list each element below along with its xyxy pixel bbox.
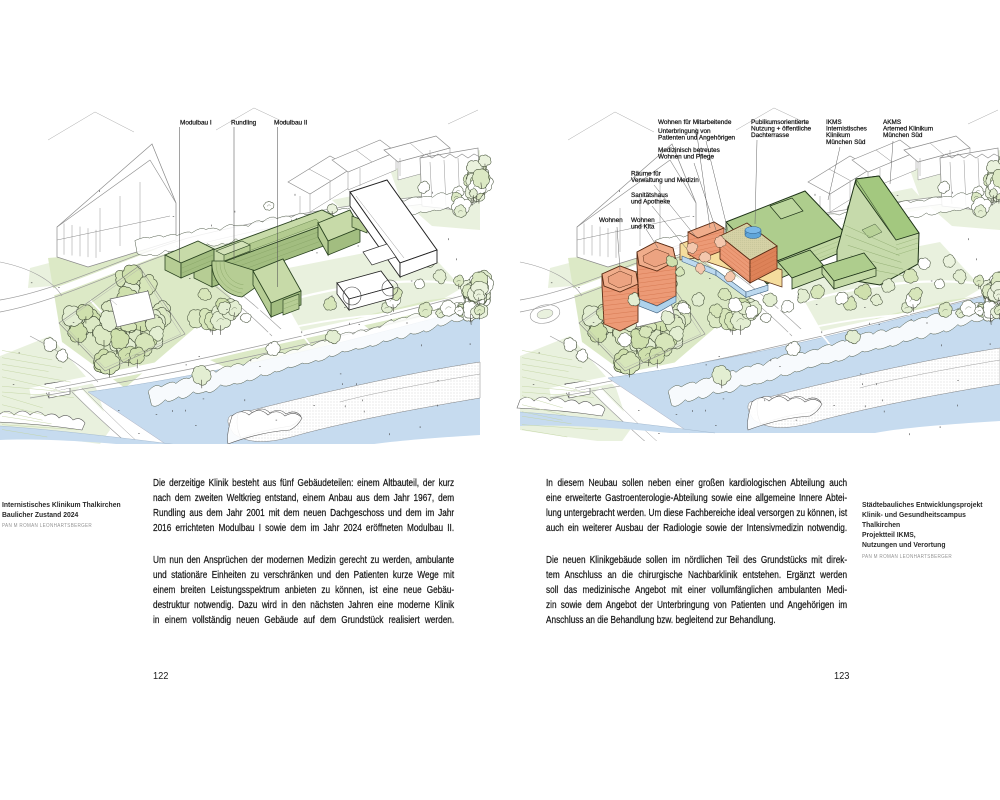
svg-text:Wohnen: Wohnen: [599, 217, 623, 224]
svg-text:Wohnenund Kita: Wohnenund Kita: [631, 217, 655, 231]
svg-text:IKMSInternistischesKlinikumMün: IKMSInternistischesKlinikumMünchen Süd: [826, 119, 867, 146]
svg-text:PublikumsorientierteNutzung +: PublikumsorientierteNutzung + öffentlich…: [751, 119, 812, 139]
svg-text:Unterbringung vonPatienten und: Unterbringung vonPatienten und Angehörig…: [658, 128, 736, 142]
svg-text:Modulbau II: Modulbau II: [274, 120, 308, 127]
svg-text:AKMSArtemed KlinikumMünchen Sü: AKMSArtemed KlinikumMünchen Süd: [883, 119, 933, 139]
svg-text:Modulbau I: Modulbau I: [180, 120, 212, 127]
svg-text:Sanitätshausund Apotheke: Sanitätshausund Apotheke: [631, 192, 671, 206]
svg-text:Rundling: Rundling: [231, 120, 257, 127]
svg-text:Medizinisch betreutesWohnen un: Medizinisch betreutesWohnen und Pflege: [658, 147, 720, 161]
svg-text:Wohnen für Mitarbeitende: Wohnen für Mitarbeitende: [658, 119, 732, 126]
